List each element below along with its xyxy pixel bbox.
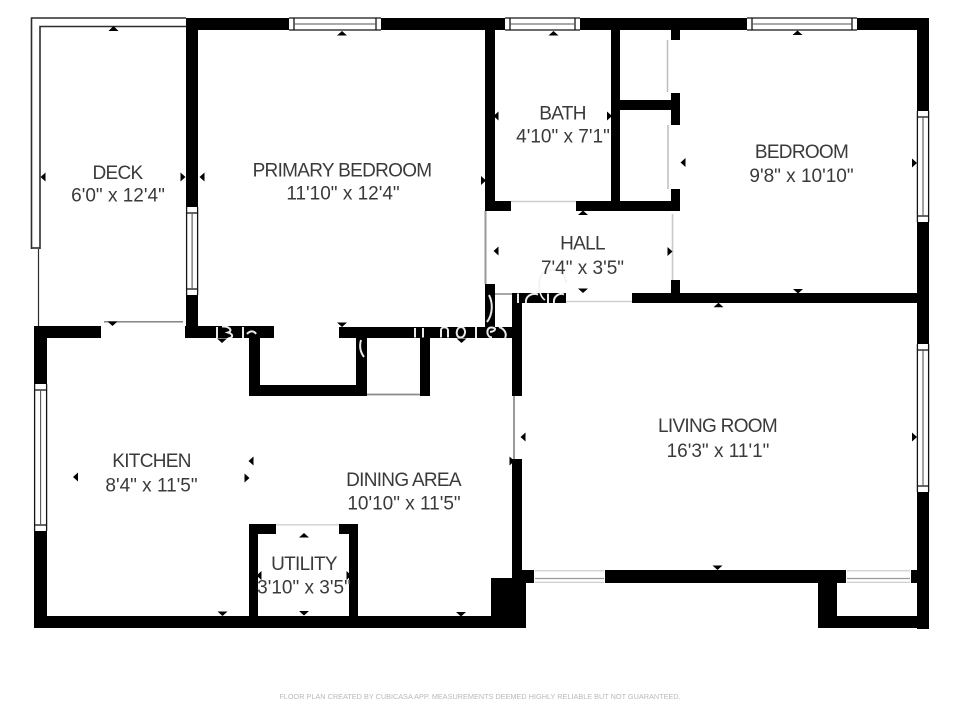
svg-text:7'4" x 3'5": 7'4" x 3'5" — [541, 258, 624, 279]
svg-text:DINING AREA: DINING AREA — [346, 470, 462, 491]
svg-text:FLOOR PLAN CREATED BY CUBICASA: FLOOR PLAN CREATED BY CUBICASA APP. MEAS… — [279, 692, 680, 701]
svg-text:BATH: BATH — [539, 104, 585, 125]
svg-text:8'4" x 11'5": 8'4" x 11'5" — [105, 476, 197, 497]
svg-text:DECK: DECK — [93, 163, 144, 184]
svg-text:HALL: HALL — [560, 234, 605, 255]
svg-text:3'10" x 3'5": 3'10" x 3'5" — [257, 578, 351, 599]
svg-text:UTILITY: UTILITY — [271, 554, 338, 575]
svg-text:PRIMARY BEDROOM: PRIMARY BEDROOM — [253, 161, 432, 182]
svg-text:6'0" x 12'4": 6'0" x 12'4" — [71, 186, 165, 207]
svg-text:4'10" x 7'1": 4'10" x 7'1" — [516, 127, 610, 148]
svg-text:11'10" x 12'4": 11'10" x 12'4" — [286, 184, 399, 205]
svg-text:9'8" x 10'10": 9'8" x 10'10" — [749, 166, 853, 187]
svg-text:BEDROOM: BEDROOM — [755, 142, 848, 163]
svg-text:KITCHEN: KITCHEN — [112, 451, 191, 472]
svg-text:LIVING ROOM: LIVING ROOM — [658, 416, 777, 437]
svg-text:16'3" x 11'1": 16'3" x 11'1" — [667, 441, 770, 462]
svg-text:10'10" x 11'5": 10'10" x 11'5" — [347, 494, 460, 515]
